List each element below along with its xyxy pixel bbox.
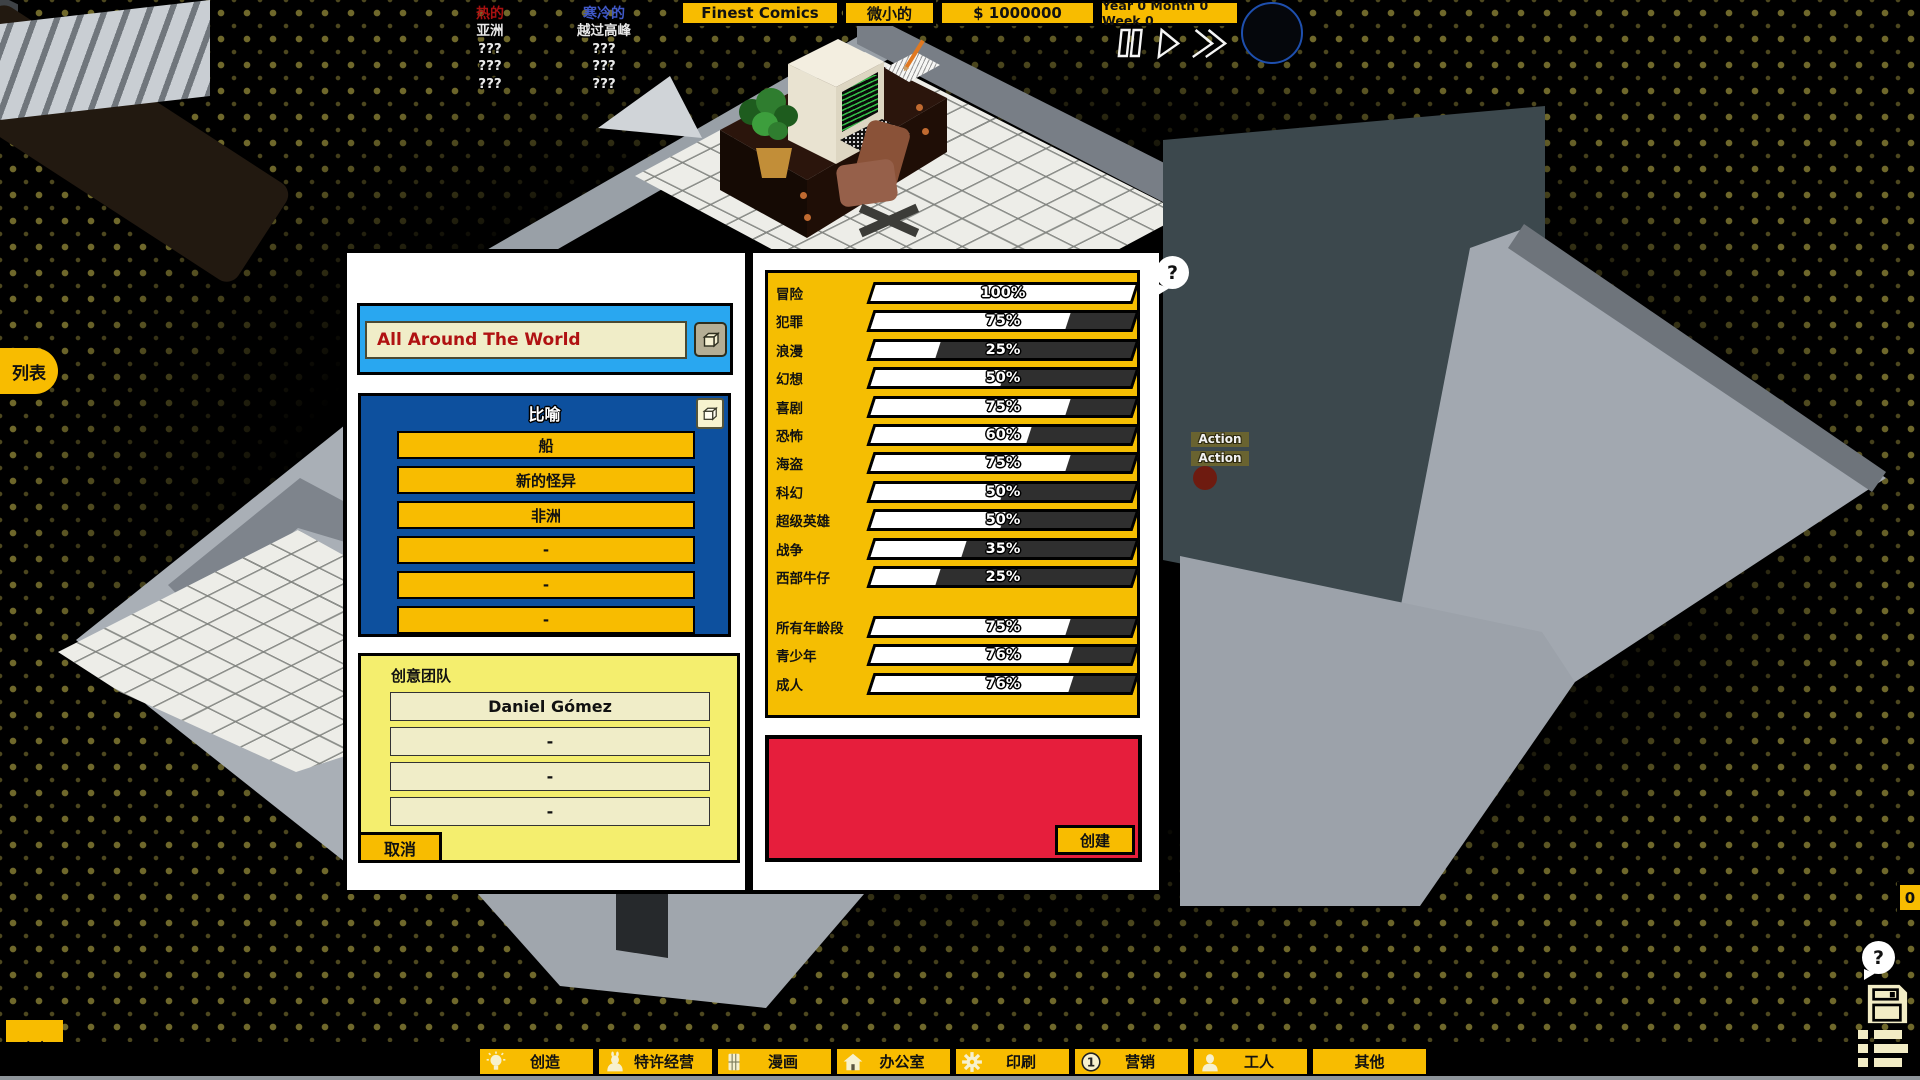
coin-icon: 1 <box>1080 1051 1102 1073</box>
genre-value: 35% <box>870 538 1136 560</box>
age-row: 青少年 76% <box>776 644 1137 666</box>
time-controls <box>1110 26 1240 66</box>
team-member-slot[interactable]: - <box>390 797 710 826</box>
genre-label: 浪漫 <box>776 340 870 360</box>
company-name-tab[interactable]: Finest Comics <box>680 0 840 26</box>
tab-workers[interactable]: 工人 <box>1192 1047 1309 1076</box>
house-icon <box>842 1051 864 1073</box>
genre-value: 75% <box>870 396 1136 418</box>
list-menu-icon[interactable] <box>1858 1030 1908 1067</box>
age-slider[interactable]: 76% <box>870 644 1136 666</box>
help-bubble-icon[interactable]: ? <box>1862 941 1895 974</box>
genre-label: 超级英雄 <box>776 510 870 530</box>
genre-slider[interactable]: 75% <box>870 310 1136 332</box>
age-label: 青少年 <box>776 645 870 665</box>
genre-label: 科幻 <box>776 482 870 502</box>
trope-button[interactable]: 非洲 <box>397 501 695 529</box>
team-member-slot[interactable]: Daniel Gómez <box>390 692 710 721</box>
age-row: 成人 76% <box>776 673 1137 695</box>
age-sliders: 所有年龄段 75% 青少年 76% 成人 <box>776 616 1137 695</box>
genre-row: 西部牛仔 25% <box>776 566 1137 588</box>
tab-office[interactable]: 办公室 <box>835 1047 952 1076</box>
genre-value: 25% <box>870 566 1136 588</box>
randomize-tropes-button[interactable] <box>696 398 724 429</box>
genre-slider[interactable]: 60% <box>870 424 1136 446</box>
genre-slider[interactable]: 50% <box>870 481 1136 503</box>
notification-counter-tab[interactable]: 0 <box>1897 882 1920 913</box>
age-value: 75% <box>870 616 1136 638</box>
trope-button[interactable]: 船 <box>397 431 695 459</box>
cancel-button[interactable]: 取消 <box>358 832 442 863</box>
svg-text:1: 1 <box>1087 1055 1095 1069</box>
lightbulb-icon <box>485 1051 507 1073</box>
tab-other[interactable]: 其他 <box>1311 1047 1428 1076</box>
mascot-icon <box>604 1051 626 1073</box>
genre-row: 恐怖 60% <box>776 424 1137 446</box>
pause-icon[interactable] <box>1119 30 1142 56</box>
genre-slider[interactable]: 25% <box>870 566 1136 588</box>
team-member-slot[interactable]: - <box>390 727 710 756</box>
genre-label: 冒险 <box>776 283 870 303</box>
genre-value: 50% <box>870 367 1136 389</box>
character-head <box>1193 466 1217 490</box>
genre-slider[interactable]: 75% <box>870 452 1136 474</box>
trope-button[interactable]: - <box>397 606 695 634</box>
drawer-knob <box>804 214 811 221</box>
genre-label: 战争 <box>776 539 870 559</box>
cold-item: ??? <box>554 76 654 94</box>
cover-preview-panel: 创建 <box>765 735 1142 862</box>
genre-value: 75% <box>870 452 1136 474</box>
genre-row: 海盗 75% <box>776 452 1137 474</box>
trope-button[interactable]: - <box>397 536 695 564</box>
genre-slider[interactable]: 25% <box>870 339 1136 361</box>
tab-marketing[interactable]: 1 营销 <box>1073 1047 1190 1076</box>
cold-item: ??? <box>554 41 654 59</box>
office-chair-seat <box>835 158 898 208</box>
comic-creation-dialog: 比喻 船 新的怪异 非洲 - - - 创意团队 <box>343 249 1163 894</box>
play-icon[interactable] <box>1159 30 1180 57</box>
company-size-tab: 微小的 <box>843 0 936 26</box>
randomize-title-button[interactable] <box>694 322 727 357</box>
genre-row: 幻想 50% <box>776 367 1137 389</box>
team-member-slot[interactable]: - <box>390 762 710 791</box>
genre-label: 喜剧 <box>776 397 870 417</box>
age-value: 76% <box>870 644 1136 666</box>
genre-slider[interactable]: 50% <box>870 367 1136 389</box>
tab-comics[interactable]: 漫画 <box>716 1047 833 1076</box>
comic-page-icon <box>723 1051 745 1073</box>
dice-icon <box>702 406 718 422</box>
age-label: 所有年龄段 <box>776 617 870 637</box>
genre-row: 冒险 100% <box>776 282 1137 304</box>
hot-item: 亚洲 <box>440 23 540 41</box>
desk-area <box>700 20 1000 260</box>
cold-trends: 寒冷的 越过高峰 ??? ??? ??? <box>554 0 654 93</box>
create-button[interactable]: 创建 <box>1055 825 1135 855</box>
trope-button[interactable]: - <box>397 571 695 599</box>
genre-value: 75% <box>870 310 1136 332</box>
hot-item: ??? <box>440 58 540 76</box>
genre-row: 喜剧 75% <box>776 396 1137 418</box>
genre-label: 恐怖 <box>776 425 870 445</box>
genre-value: 25% <box>870 339 1136 361</box>
tab-printing[interactable]: 印刷 <box>954 1047 1071 1076</box>
fast-forward-icon[interactable] <box>1193 30 1227 57</box>
title-panel <box>357 303 733 375</box>
save-floppy-icon[interactable] <box>1864 982 1910 1030</box>
genre-value: 60% <box>870 424 1136 446</box>
hot-label: 热的 <box>440 3 540 23</box>
action-tag: Action <box>1191 451 1248 466</box>
genre-row: 科幻 50% <box>776 481 1137 503</box>
cold-item: 越过高峰 <box>554 23 654 41</box>
bottom-bar: 创造 特许经营 漫画 <box>0 1042 1920 1080</box>
hot-item: ??? <box>440 41 540 59</box>
stairs <box>0 0 210 120</box>
genre-row: 战争 35% <box>776 538 1137 560</box>
money-tab: $ 1000000 <box>939 0 1096 26</box>
bottom-tabs: 创造 特许经营 漫画 <box>478 1047 1428 1076</box>
gear-icon <box>961 1051 983 1073</box>
hot-trends: 热的 亚洲 ??? ??? ??? <box>440 0 540 93</box>
trope-button[interactable]: 新的怪异 <box>397 466 695 494</box>
genre-sliders-panel: 冒险 100% 犯罪 75% 浪漫 25% <box>765 270 1140 718</box>
date-tab: Year 0 Month 0 Week 0 <box>1099 0 1240 26</box>
team-list: Daniel Gómez - - - <box>390 692 710 826</box>
genre-value: 50% <box>870 481 1136 503</box>
comic-title-input[interactable] <box>365 321 687 359</box>
tab-franchise[interactable]: 特许经营 <box>597 1047 714 1076</box>
creative-team-panel: 创意团队 Daniel Gómez - - - 取消 <box>358 653 740 863</box>
trope-list: 船 新的怪异 非洲 - - - <box>397 431 695 634</box>
genre-row: 犯罪 75% <box>776 310 1137 332</box>
team-title: 创意团队 <box>391 665 451 686</box>
dialog-divider <box>745 253 753 890</box>
action-labels: Action Action <box>1140 428 1300 466</box>
worker-icon <box>1199 1051 1221 1073</box>
dice-icon <box>702 331 720 349</box>
genre-slider[interactable]: 35% <box>870 538 1136 560</box>
age-value: 76% <box>870 673 1136 695</box>
age-row: 所有年龄段 75% <box>776 616 1137 638</box>
tropes-panel: 比喻 船 新的怪异 非洲 - - - <box>358 393 731 637</box>
list-button[interactable]: 列表 <box>0 348 58 394</box>
cold-label: 寒冷的 <box>554 3 654 23</box>
game-screen: Action Action 热的 亚洲 ??? ??? ??? 寒冷的 越过高峰… <box>0 0 1920 1080</box>
bottom-edge-strip <box>0 1076 1920 1080</box>
genre-label: 幻想 <box>776 368 870 388</box>
plant-foliage <box>768 122 788 140</box>
genre-label: 海盗 <box>776 453 870 473</box>
tropes-title: 比喻 <box>361 401 728 425</box>
tab-create[interactable]: 创造 <box>478 1047 595 1076</box>
hot-item: ??? <box>440 76 540 94</box>
genre-row: 超级英雄 50% <box>776 509 1137 531</box>
age-label: 成人 <box>776 674 870 694</box>
genre-slider[interactable]: 50% <box>870 509 1136 531</box>
genre-value: 50% <box>870 509 1136 531</box>
genre-label: 西部牛仔 <box>776 567 870 587</box>
age-slider[interactable]: 75% <box>870 616 1136 638</box>
age-slider[interactable]: 76% <box>870 673 1136 695</box>
cold-item: ??? <box>554 58 654 76</box>
game-clock <box>1241 2 1303 64</box>
genre-row: 浪漫 25% <box>776 339 1137 361</box>
genre-label: 犯罪 <box>776 311 870 331</box>
drawer-knob <box>800 192 807 199</box>
trend-lists: 热的 亚洲 ??? ??? ??? 寒冷的 越过高峰 ??? ??? ??? <box>440 0 654 93</box>
drawer-knob <box>922 128 929 135</box>
action-tag: Action <box>1191 432 1248 447</box>
drawer-knob <box>916 104 923 111</box>
genre-slider[interactable]: 100% <box>870 282 1136 304</box>
help-bubble-icon[interactable]: ? <box>1156 256 1189 289</box>
genre-slider[interactable]: 75% <box>870 396 1136 418</box>
genre-value: 100% <box>870 282 1136 304</box>
